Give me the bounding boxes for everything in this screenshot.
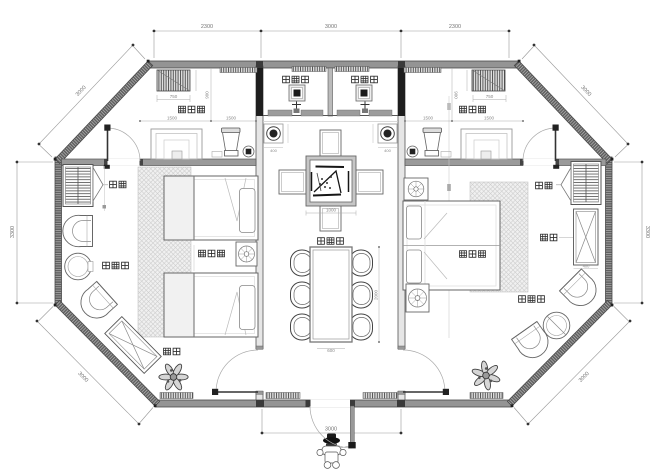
svg-text:900: 900 (454, 91, 459, 99)
svg-text:3300: 3300 (644, 226, 650, 238)
svg-text:2300: 2300 (449, 24, 461, 30)
svg-text:1000: 1000 (326, 208, 337, 213)
svg-text:750: 750 (486, 94, 494, 99)
svg-text:400: 400 (270, 148, 277, 153)
svg-text:1500: 1500 (484, 116, 495, 121)
svg-text:2300: 2300 (201, 24, 213, 30)
svg-text:400: 400 (384, 148, 391, 153)
svg-text:2000: 2000 (374, 289, 379, 300)
svg-text:3300: 3300 (10, 226, 16, 238)
svg-text:3000: 3000 (325, 427, 337, 433)
svg-text:1500: 1500 (423, 116, 434, 121)
svg-text:1500: 1500 (167, 116, 178, 121)
svg-text:3000: 3000 (325, 24, 337, 30)
svg-text:900: 900 (205, 91, 210, 99)
svg-text:400: 400 (583, 264, 590, 269)
svg-text:1500: 1500 (226, 116, 237, 121)
svg-text:750: 750 (170, 94, 178, 99)
svg-text:600: 600 (327, 348, 335, 353)
